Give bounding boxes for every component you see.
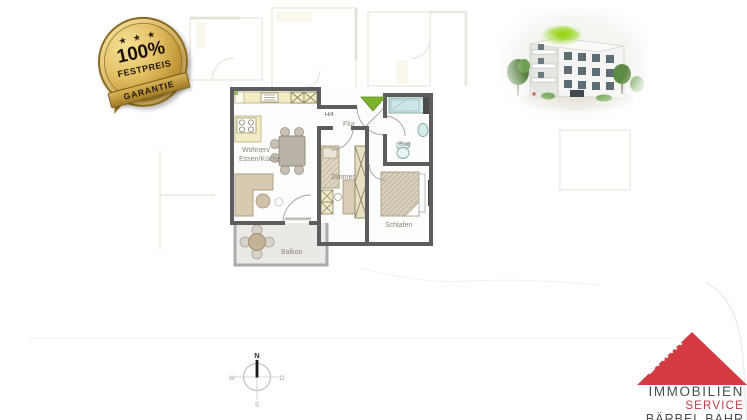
page: ★ ★ ★ 100% FESTPREIS GARANTIE [0, 0, 747, 420]
floor-plan: Balkon [227, 80, 439, 272]
bath-sink [418, 124, 428, 137]
compass-north: N [254, 351, 259, 360]
vignette-fade [500, 8, 650, 120]
zimmer-stool [335, 194, 342, 201]
compass-east: O [279, 375, 284, 382]
unit-label: H/4 [325, 112, 334, 118]
zimmer-wardrobe-small [321, 190, 333, 214]
living-label-line2: Essen/Küche [239, 156, 280, 163]
bath-shelf [423, 97, 429, 114]
logo-line-immobilien: IMMOBILIEN [646, 385, 744, 399]
logo-wordmark: IMMOBILIEN SERVICE BÄRBEL BAHR [646, 385, 744, 420]
coffee-table [256, 194, 270, 208]
balcony-label: Balkon [281, 249, 303, 256]
logo-roof-triangle: BAHR [622, 328, 747, 386]
bath-label: Bad [399, 141, 411, 148]
compass-rose: N W O S [227, 350, 287, 410]
balcony: Balkon [235, 223, 327, 265]
logo-line-baerbel-bahr: BÄRBEL BAHR [646, 413, 744, 420]
living-label-line1: Wohnen/ [242, 147, 270, 154]
compass-south: S [255, 402, 260, 409]
bedroom-furniture [381, 172, 432, 216]
sill-annotation [285, 218, 311, 219]
building-rendering [500, 8, 650, 120]
bed-side-rail [419, 174, 425, 212]
logo-line-service: SERVICE [646, 400, 744, 412]
company-logo: BAHR IMMOBILIEN SERVICE BÄRBEL BAHR [622, 328, 747, 420]
zimmer-label: Zimmer [331, 174, 355, 181]
balcony-table [249, 234, 266, 251]
zimmer-desk [343, 180, 355, 214]
floor-lamp [275, 198, 283, 206]
dining-table [279, 136, 305, 166]
compass-needle [256, 360, 259, 378]
seal-circle: ★ ★ ★ 100% FESTPREIS GARANTIE [90, 8, 197, 115]
toilet [397, 148, 409, 159]
compass-west: W [229, 375, 236, 382]
bedroom-label: Schlafen [385, 222, 412, 229]
kitchen-tall-cabinet [291, 92, 317, 103]
